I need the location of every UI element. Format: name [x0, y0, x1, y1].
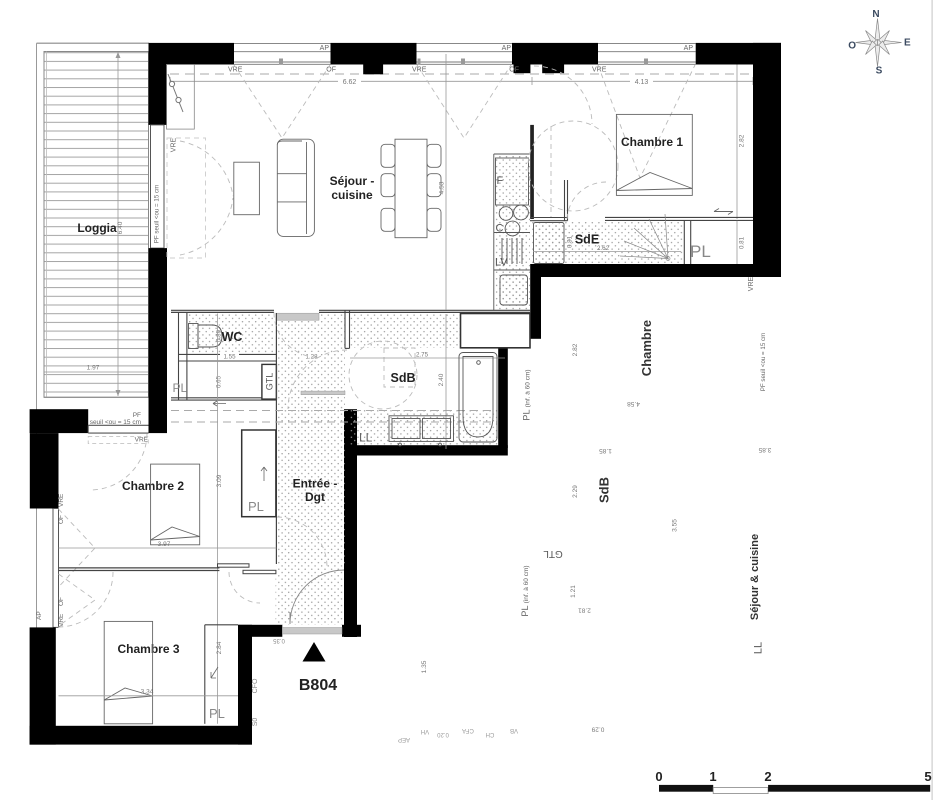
- svg-text:3.09: 3.09: [216, 474, 223, 487]
- svg-text:B804: B804: [299, 677, 337, 694]
- svg-text:0.35: 0.35: [273, 637, 285, 643]
- svg-text:OF: OF: [509, 67, 519, 74]
- svg-text:PF: PF: [133, 412, 141, 419]
- svg-text:O: O: [848, 41, 856, 52]
- svg-text:VRE: VRE: [58, 493, 65, 507]
- svg-text:1.97: 1.97: [87, 365, 100, 372]
- svg-text:1.35: 1.35: [421, 660, 428, 673]
- svg-text:0.20: 0.20: [437, 731, 449, 737]
- svg-text:2.82: 2.82: [572, 343, 579, 356]
- svg-text:0.81: 0.81: [567, 235, 574, 248]
- svg-text:2.40: 2.40: [438, 373, 445, 386]
- svg-text:LL: LL: [359, 431, 373, 445]
- svg-text:SdB: SdB: [597, 477, 612, 503]
- svg-text:2.82: 2.82: [739, 134, 746, 147]
- svg-text:6.40: 6.40: [117, 221, 124, 234]
- svg-text:AP: AP: [320, 45, 330, 52]
- svg-text:2: 2: [764, 769, 771, 784]
- svg-text:PL: PL: [209, 706, 225, 721]
- svg-text:1: 1: [709, 769, 716, 784]
- svg-text:CFA: CFA: [462, 727, 474, 733]
- svg-text:Séjour -: Séjour -: [330, 174, 375, 188]
- svg-text:0.89: 0.89: [216, 329, 223, 342]
- svg-text:2.84: 2.84: [216, 641, 223, 654]
- svg-text:Chambre 1: Chambre 1: [621, 135, 683, 149]
- svg-text:S0: S0: [252, 718, 259, 727]
- svg-text:GTL: GTL: [265, 373, 275, 391]
- svg-text:PF seuil <ou = 15 cm: PF seuil <ou = 15 cm: [154, 185, 161, 243]
- svg-text:1.21: 1.21: [570, 585, 577, 598]
- svg-text:1.85: 1.85: [599, 447, 612, 454]
- svg-text:OF: OF: [58, 597, 65, 606]
- svg-text:PF seuil <ou = 15 cm: PF seuil <ou = 15 cm: [760, 333, 767, 391]
- svg-text:VB: VB: [510, 727, 518, 733]
- svg-text:VRE: VRE: [412, 67, 427, 74]
- svg-text:0: 0: [655, 769, 662, 784]
- svg-text:SdB: SdB: [391, 371, 416, 385]
- svg-text:PL: PL: [173, 381, 188, 395]
- svg-text:LL: LL: [753, 642, 765, 654]
- svg-text:seuil <ou = 15 cm: seuil <ou = 15 cm: [90, 419, 141, 426]
- svg-text:CFO: CFO: [252, 678, 259, 693]
- svg-text:AEP: AEP: [398, 736, 410, 742]
- svg-text:F: F: [497, 175, 504, 187]
- svg-text:SdE: SdE: [575, 233, 599, 247]
- svg-text:2.29: 2.29: [572, 485, 579, 498]
- svg-text:cuisine: cuisine: [331, 188, 373, 202]
- svg-text:1.55: 1.55: [223, 354, 236, 361]
- svg-text:2.75: 2.75: [416, 352, 429, 359]
- svg-text:Entrée -: Entrée -: [293, 477, 338, 491]
- svg-text:VRE: VRE: [58, 613, 65, 627]
- svg-text:Loggia: Loggia: [77, 221, 117, 235]
- svg-text:Chambre: Chambre: [639, 320, 654, 376]
- svg-text:OF: OF: [326, 67, 336, 74]
- svg-text:C: C: [496, 223, 504, 235]
- svg-text:VH: VH: [421, 728, 429, 734]
- svg-text:AP: AP: [684, 45, 694, 52]
- svg-text:Chambre 2: Chambre 2: [122, 479, 184, 493]
- svg-text:AP: AP: [36, 611, 43, 620]
- svg-text:3.97: 3.97: [158, 541, 171, 548]
- svg-text:N: N: [872, 9, 879, 20]
- svg-text:Dgt: Dgt: [305, 490, 325, 504]
- svg-text:S: S: [876, 66, 883, 77]
- svg-text:3.85: 3.85: [758, 446, 771, 453]
- svg-text:0.65: 0.65: [216, 375, 223, 388]
- svg-text:3.55: 3.55: [672, 519, 679, 532]
- svg-text:4.13: 4.13: [635, 79, 649, 86]
- svg-text:4.53: 4.53: [439, 181, 446, 194]
- svg-text:AP: AP: [502, 45, 512, 52]
- svg-text:VRE: VRE: [748, 276, 755, 291]
- svg-text:OF: OF: [58, 515, 65, 524]
- svg-text:Séjour & cuisine: Séjour & cuisine: [749, 534, 761, 620]
- svg-text:0.81: 0.81: [739, 236, 746, 249]
- svg-text:2.81: 2.81: [578, 607, 591, 614]
- svg-text:GTL: GTL: [543, 548, 563, 559]
- svg-text:3.34: 3.34: [141, 689, 154, 696]
- svg-text:E: E: [904, 38, 911, 49]
- svg-text:CH: CH: [486, 731, 495, 737]
- svg-text:VRE: VRE: [171, 137, 178, 152]
- svg-text:4.58: 4.58: [627, 400, 640, 407]
- svg-text:Chambre 3: Chambre 3: [117, 642, 179, 656]
- svg-text:PL: PL: [248, 499, 264, 514]
- svg-text:WC: WC: [222, 330, 243, 344]
- svg-text:0.29: 0.29: [591, 726, 604, 733]
- svg-text:LV: LV: [495, 257, 508, 269]
- svg-text:PL: PL: [690, 242, 711, 261]
- svg-text:6.62: 6.62: [343, 79, 357, 86]
- svg-text:2.62: 2.62: [597, 245, 610, 252]
- svg-text:5: 5: [924, 769, 931, 784]
